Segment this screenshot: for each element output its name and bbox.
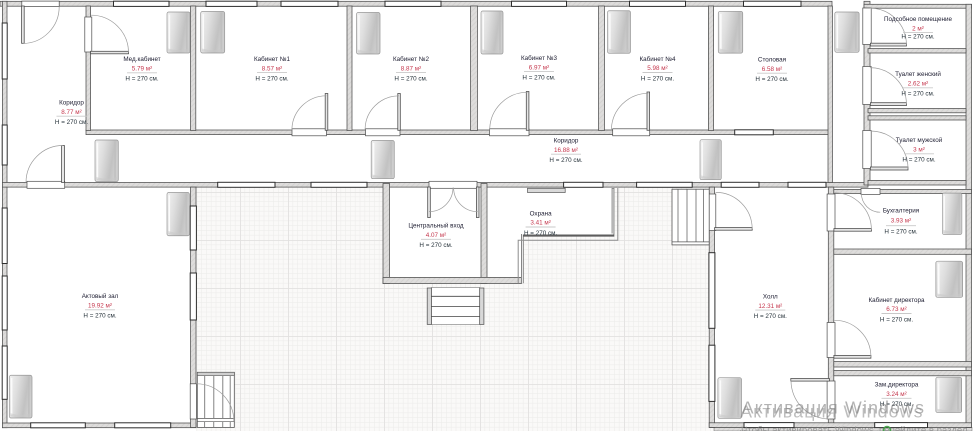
svg-text:8.87 м²: 8.87 м² [401, 65, 421, 72]
svg-text:Центральный вход: Центральный вход [408, 222, 464, 230]
svg-text:3.93 м²: 3.93 м² [891, 218, 911, 225]
svg-text:6.58 м²: 6.58 м² [762, 66, 782, 73]
svg-text:Зам.директора: Зам.директора [875, 382, 919, 389]
svg-text:Туалет мужской: Туалет мужской [896, 136, 943, 144]
svg-text:3 м²: 3 м² [913, 147, 925, 154]
svg-text:H = 270 см.: H = 270 см. [754, 313, 787, 320]
svg-text:2.62 м²: 2.62 м² [908, 81, 928, 88]
svg-text:8.57 м²: 8.57 м² [262, 65, 282, 72]
svg-text:Подсобное помещение: Подсобное помещение [884, 15, 952, 23]
svg-text:5.79 м²: 5.79 м² [132, 66, 152, 73]
svg-text:H = 270 см.: H = 270 см. [880, 316, 913, 323]
svg-text:H = 270 см.: H = 270 см. [255, 75, 288, 82]
svg-text:3.41 м²: 3.41 м² [530, 220, 550, 227]
svg-text:Кабинет №3: Кабинет №3 [521, 54, 557, 62]
svg-text:Столовая: Столовая [758, 57, 786, 64]
svg-text:H = 270 см.: H = 270 см. [901, 33, 934, 40]
svg-text:Кабинет №1: Кабинет №1 [254, 55, 290, 63]
svg-text:Мед.кабинет: Мед.кабинет [123, 55, 160, 63]
svg-text:Кабинет №4: Кабинет №4 [640, 55, 676, 63]
svg-text:H = 270 см.: H = 270 см. [125, 76, 158, 83]
svg-text:12.31 м²: 12.31 м² [758, 303, 782, 310]
svg-text:Кабинет №2: Кабинет №2 [393, 55, 429, 63]
svg-text:Охрана: Охрана [530, 210, 552, 217]
svg-text:6.73 м²: 6.73 м² [886, 306, 906, 313]
svg-text:Кабинет директора: Кабинет директора [868, 296, 925, 304]
svg-text:16.88 м²: 16.88 м² [554, 147, 578, 154]
svg-text:H = 270 см.: H = 270 см. [641, 75, 674, 82]
svg-text:Коридор: Коридор [554, 138, 579, 145]
svg-text:2 м²: 2 м² [912, 25, 924, 32]
svg-text:Холл: Холл [763, 294, 778, 301]
svg-text:H = 270 см.: H = 270 см. [55, 119, 88, 126]
svg-text:H = 270 см.: H = 270 см. [522, 74, 555, 81]
svg-text:6.97 м²: 6.97 м² [529, 64, 549, 71]
svg-text:8.77 м²: 8.77 м² [61, 109, 81, 116]
svg-text:H = 270 см.: H = 270 см. [902, 157, 935, 164]
svg-text:H = 270 см.: H = 270 см. [901, 91, 934, 98]
svg-text:Туалет женский: Туалет женский [895, 70, 941, 78]
svg-text:5.98 м²: 5.98 м² [647, 65, 667, 72]
svg-text:4.07 м²: 4.07 м² [426, 232, 446, 239]
svg-text:Активация Windows: Активация Windows [740, 402, 923, 422]
svg-text:Коридор: Коридор [59, 100, 84, 107]
svg-text:H = 270 см.: H = 270 см. [524, 230, 557, 237]
svg-text:19.92 м²: 19.92 м² [88, 303, 112, 310]
svg-text:H = 270 см.: H = 270 см. [884, 229, 917, 236]
svg-text:Бухгалтерия: Бухгалтерия [883, 207, 919, 214]
svg-text:H = 270 см.: H = 270 см. [419, 242, 452, 249]
svg-text:Актовый зал: Актовый зал [82, 292, 119, 300]
svg-text:H = 270 см.: H = 270 см. [394, 75, 427, 82]
svg-text:H = 270 см.: H = 270 см. [83, 313, 116, 320]
svg-text:H = 270 см.: H = 270 см. [549, 157, 582, 164]
svg-text:H = 270 см.: H = 270 см. [755, 76, 788, 83]
